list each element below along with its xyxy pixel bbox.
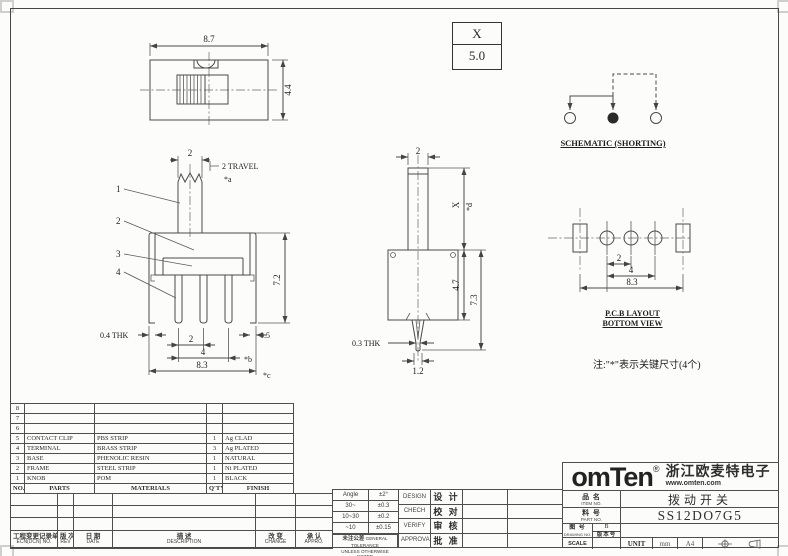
tol-value: ±0.2 — [369, 512, 399, 523]
unit-label: UNIT — [621, 538, 653, 549]
drawing-rev-label: 版本号 — [597, 532, 617, 538]
part-finish: Ni PLATED — [223, 464, 294, 474]
tol-range: 30~ — [333, 501, 369, 512]
item-name-value: 拨动开关 — [621, 491, 779, 507]
part-qty: 1 — [207, 454, 223, 464]
ecn-empty-row — [11, 506, 333, 518]
drawing-sheet: 8.7 4.4 X 5.0 SCHEMATIC (SHORTING) 2 2 T… — [0, 0, 788, 556]
rev-en: REV — [60, 539, 70, 545]
star-a: *a — [224, 175, 232, 184]
general-tolerance-en2: UNLESS OTHERWISE NOTED — [333, 549, 397, 556]
company-website: www.omten.com — [666, 480, 771, 488]
pin-thickness-dim: 0.3 THK — [352, 339, 381, 348]
scale-row: SCALE UNIT mm A4 — [563, 538, 779, 549]
ecn-empty-row — [11, 494, 333, 506]
header-finish: FINISH — [223, 484, 294, 494]
change-en: CHANGE — [265, 539, 286, 545]
top-view-width-dim: 8.7 — [203, 34, 215, 44]
company-info: 浙江欧麦特电子 www.omten.com — [666, 466, 771, 488]
parameter-name: X — [453, 23, 501, 45]
appro-en: APPRO. — [305, 539, 324, 545]
paper-size: A4 — [678, 538, 703, 549]
tolerance-table: Angle±2° 30~±0.3 10~30±0.2 ~10±0.15 — [332, 489, 399, 534]
part-qty: 3 — [207, 444, 223, 454]
knob-width-dim: 2 — [188, 148, 193, 158]
general-tolerance-cn: 未注公差 — [342, 536, 364, 542]
body-depth-dim: 4.7 — [451, 279, 461, 291]
change-header: 改 变CHANGE — [256, 531, 296, 549]
part-no: 7 — [11, 414, 25, 424]
table-row: 8 — [11, 404, 294, 414]
part-finish: Ag PLATED — [223, 444, 294, 454]
parameter-box: X 5.0 — [452, 22, 502, 70]
tol-value: ±0.15 — [369, 523, 399, 534]
check-signature — [463, 504, 508, 519]
company-name: 浙江欧麦特电子 — [666, 466, 771, 480]
part-finish: NATURAL — [223, 454, 294, 464]
approval-date — [508, 533, 563, 548]
balloon-2: 2 — [116, 216, 121, 226]
part-no: 2 — [11, 464, 25, 474]
pcb-total-dim: 8.3 — [626, 277, 638, 287]
design-label-cn: 设 计 — [431, 490, 463, 505]
title-block: omTen ® 浙江欧麦特电子 www.omten.com 品 名 ITEM N… — [562, 462, 779, 548]
part-name: TERMINAL — [25, 444, 95, 454]
tolerance-row: Angle±2° — [333, 490, 399, 501]
parts-table-header: NO.PARTSMATERIALSQ'TYFINISH — [11, 484, 294, 494]
projection-angle-icon — [716, 539, 766, 549]
top-view-height-dim: 4.4 — [283, 84, 293, 96]
tol-value: ±0.3 — [369, 501, 399, 512]
part-qty: 1 — [207, 464, 223, 474]
verify-label-cn: 审 核 — [431, 519, 463, 534]
logo-text: omTen — [571, 464, 653, 490]
part-finish — [223, 424, 294, 434]
part-material: PHENOLIC RESIN — [95, 454, 207, 464]
table-row: 6 — [11, 424, 294, 434]
verify-row: VERIFY审 核 — [399, 519, 563, 534]
omten-logo: omTen ® — [571, 464, 659, 490]
balloon-4: 4 — [116, 267, 121, 277]
part-material: BRASS STRIP — [95, 444, 207, 454]
tolerance-row: ~10±0.15 — [333, 523, 399, 534]
tol-range: ~10 — [333, 523, 369, 534]
front-view-drawing: 2 2 TRAVEL *a 1 2 3 4 7.2 0.4 THK 0.5 — [98, 140, 333, 385]
drawing-rev-cell: B 版本号 — [593, 524, 621, 537]
pin-pitch-dim: 2 — [189, 334, 194, 344]
part-label-cn: 料 号 — [582, 509, 601, 517]
drawing-label-cn: 图 号 — [569, 525, 586, 532]
schematic-drawing — [540, 52, 675, 137]
pin-tip-width-dim: 1.2 — [412, 366, 423, 376]
part-number-value: SS12DO7G5 — [621, 508, 779, 523]
ecn-header-row: 工程变更记录单ECN(DCN) NO. 版 次REV 日 期DATE 描 述DE… — [11, 531, 333, 549]
scale-label: SCALE — [563, 538, 593, 549]
travel-dim: 2 TRAVEL — [222, 162, 258, 171]
part-qty — [207, 424, 223, 434]
tolerance-row: 10~30±0.2 — [333, 512, 399, 523]
total-height-dim: 7.3 — [469, 294, 479, 306]
part-finish: Ag CLAD — [223, 434, 294, 444]
appro-header: 承 认APPRO. — [296, 531, 333, 549]
drawing-row: 图 号 DRAWING NO. B 版本号 — [563, 524, 779, 538]
rev-header: 版 次REV — [58, 531, 74, 549]
check-label-en: CHECH — [399, 504, 431, 519]
approval-signature — [463, 533, 508, 548]
part-no: 4 — [11, 444, 25, 454]
drawing-number-value — [621, 524, 779, 537]
key-dimension-note: 注:"*"表示关键尺寸(4个) — [593, 356, 701, 371]
table-row: 1KNOBPOM1BLACK — [11, 474, 294, 484]
table-row: 3BASEPHENOLIC RESIN1NATURAL — [11, 454, 294, 464]
verify-signature — [463, 519, 508, 534]
item-label-en: ITEM NO. — [581, 501, 601, 506]
star-c: *c — [263, 371, 271, 380]
part-name — [25, 404, 95, 414]
stem-width-dim: 2 — [416, 146, 421, 156]
ecn-table: 工程变更记录单ECN(DCN) NO. 版 次REV 日 期DATE 描 述DE… — [10, 493, 333, 549]
logo-row: omTen ® 浙江欧麦特电子 www.omten.com — [563, 463, 779, 491]
part-no: 5 — [11, 434, 25, 444]
bottom-view-label: BOTTOM VIEW — [585, 319, 680, 329]
tol-range: Angle — [333, 490, 369, 501]
approval-row: APPROVAL批 准 — [399, 533, 563, 548]
ecn-no-en: ECN(DCN) NO. — [17, 539, 52, 545]
knob-height-dim: X — [451, 201, 461, 208]
table-row: 4TERMINALBRASS STRIP3Ag PLATED — [11, 444, 294, 454]
schematic-label: SCHEMATIC (SHORTING) — [558, 138, 668, 148]
registered-mark-icon: ® — [653, 464, 660, 474]
part-qty: 1 — [207, 434, 223, 444]
top-view-drawing: 8.7 4.4 — [112, 30, 312, 135]
pcb-pitch-dim: 2 — [617, 253, 622, 263]
overall-width-dim: 8.3 — [196, 360, 208, 370]
part-qty: 1 — [207, 474, 223, 484]
drawing-label-en: DRAWING NO. — [564, 532, 591, 537]
projection-symbols — [703, 538, 779, 549]
date-en: DATE — [87, 539, 100, 545]
tol-value: ±2° — [369, 490, 399, 501]
parts-table: 8 7 6 5CONTACT CLIPPBS STRIP1Ag CLAD 4TE… — [10, 403, 294, 494]
design-signature — [463, 490, 508, 505]
approval-label-cn: 批 准 — [431, 533, 463, 548]
part-name — [25, 414, 95, 424]
design-date — [508, 490, 563, 505]
design-label-en: DESIGN — [399, 490, 431, 505]
header-materials: MATERIALS — [95, 484, 207, 494]
drawing-rev-value: B — [593, 524, 620, 532]
part-no: 3 — [11, 454, 25, 464]
part-name: FRAME — [25, 464, 95, 474]
check-row: CHECH校 对 — [399, 504, 563, 519]
part-name: CONTACT CLIP — [25, 434, 95, 444]
star-b: *b — [244, 355, 252, 364]
balloon-1: 1 — [116, 184, 121, 194]
pcb-layout-drawing: 2 4 8.3 — [540, 196, 700, 311]
unit-value: mm — [653, 538, 678, 549]
drawing-label: 图 号 DRAWING NO. — [563, 524, 593, 537]
part-material: STEEL STRIP — [95, 464, 207, 474]
part-finish: BLACK — [223, 474, 294, 484]
header-no: NO. — [11, 484, 25, 494]
part-name: BASE — [25, 454, 95, 464]
parameter-value: 5.0 — [453, 45, 501, 66]
part-no: 8 — [11, 404, 25, 414]
pcb-span-dim: 4 — [629, 265, 634, 275]
part-name: KNOB — [25, 474, 95, 484]
tol-range: 10~30 — [333, 512, 369, 523]
lug-thickness-dim: 0.4 THK — [100, 331, 129, 340]
header-qty: Q'TY — [207, 484, 223, 494]
part-finish — [223, 414, 294, 424]
part-row: 料 号 PART NO. SS12DO7G5 — [563, 508, 779, 524]
part-material: POM — [95, 474, 207, 484]
part-qty — [207, 414, 223, 424]
part-material — [95, 404, 207, 414]
pcb-layout-label: P.C.B LAYOUT — [585, 309, 680, 319]
balloon-3: 3 — [116, 249, 121, 259]
date-header: 日 期DATE — [74, 531, 113, 549]
general-tolerance-note: 未注公差 GENERAL TOLERANCE UNLESS OTHERWISE … — [332, 534, 398, 548]
table-row: 7 — [11, 414, 294, 424]
design-row: DESIGN设 计 — [399, 490, 563, 505]
part-no: 1 — [11, 474, 25, 484]
ecn-empty-row — [11, 518, 333, 531]
part-name — [25, 424, 95, 434]
part-material: PBS STRIP — [95, 434, 207, 444]
part-finish — [223, 404, 294, 414]
star-d: *d — [465, 203, 474, 211]
part-qty — [207, 404, 223, 414]
pin-span-dim: 4 — [201, 347, 206, 357]
verify-date — [508, 519, 563, 534]
part-label: 料 号 PART NO. — [563, 508, 621, 523]
item-label-cn: 品 名 — [582, 493, 601, 501]
scale-value — [593, 538, 621, 549]
description-header: 描 述DESCRIPTION — [113, 531, 256, 549]
check-label-cn: 校 对 — [431, 504, 463, 519]
tolerance-row: 30~±0.3 — [333, 501, 399, 512]
body-height-dim: 7.2 — [272, 274, 282, 285]
signoff-table: DESIGN设 计 CHECH校 对 VERIFY审 核 APPROVAL批 准 — [398, 489, 563, 548]
approval-label-en: APPROVAL — [399, 533, 431, 548]
ecn-no-header: 工程变更记录单ECN(DCN) NO. — [11, 531, 58, 549]
verify-label-en: VERIFY — [399, 519, 431, 534]
part-no: 6 — [11, 424, 25, 434]
item-label: 品 名 ITEM NO. — [563, 491, 621, 507]
part-material — [95, 414, 207, 424]
description-en: DESCRIPTION — [167, 539, 201, 545]
check-date — [508, 504, 563, 519]
part-label-en: PART NO. — [581, 517, 602, 522]
side-view-drawing: 2 X *d 4.7 7.3 0.3 THK 1.2 — [352, 143, 502, 383]
part-material — [95, 424, 207, 434]
header-parts: PARTS — [25, 484, 95, 494]
table-row: 5CONTACT CLIPPBS STRIP1Ag CLAD — [11, 434, 294, 444]
table-row: 2FRAMESTEEL STRIP1Ni PLATED — [11, 464, 294, 474]
item-row: 品 名 ITEM NO. 拨动开关 — [563, 491, 779, 508]
